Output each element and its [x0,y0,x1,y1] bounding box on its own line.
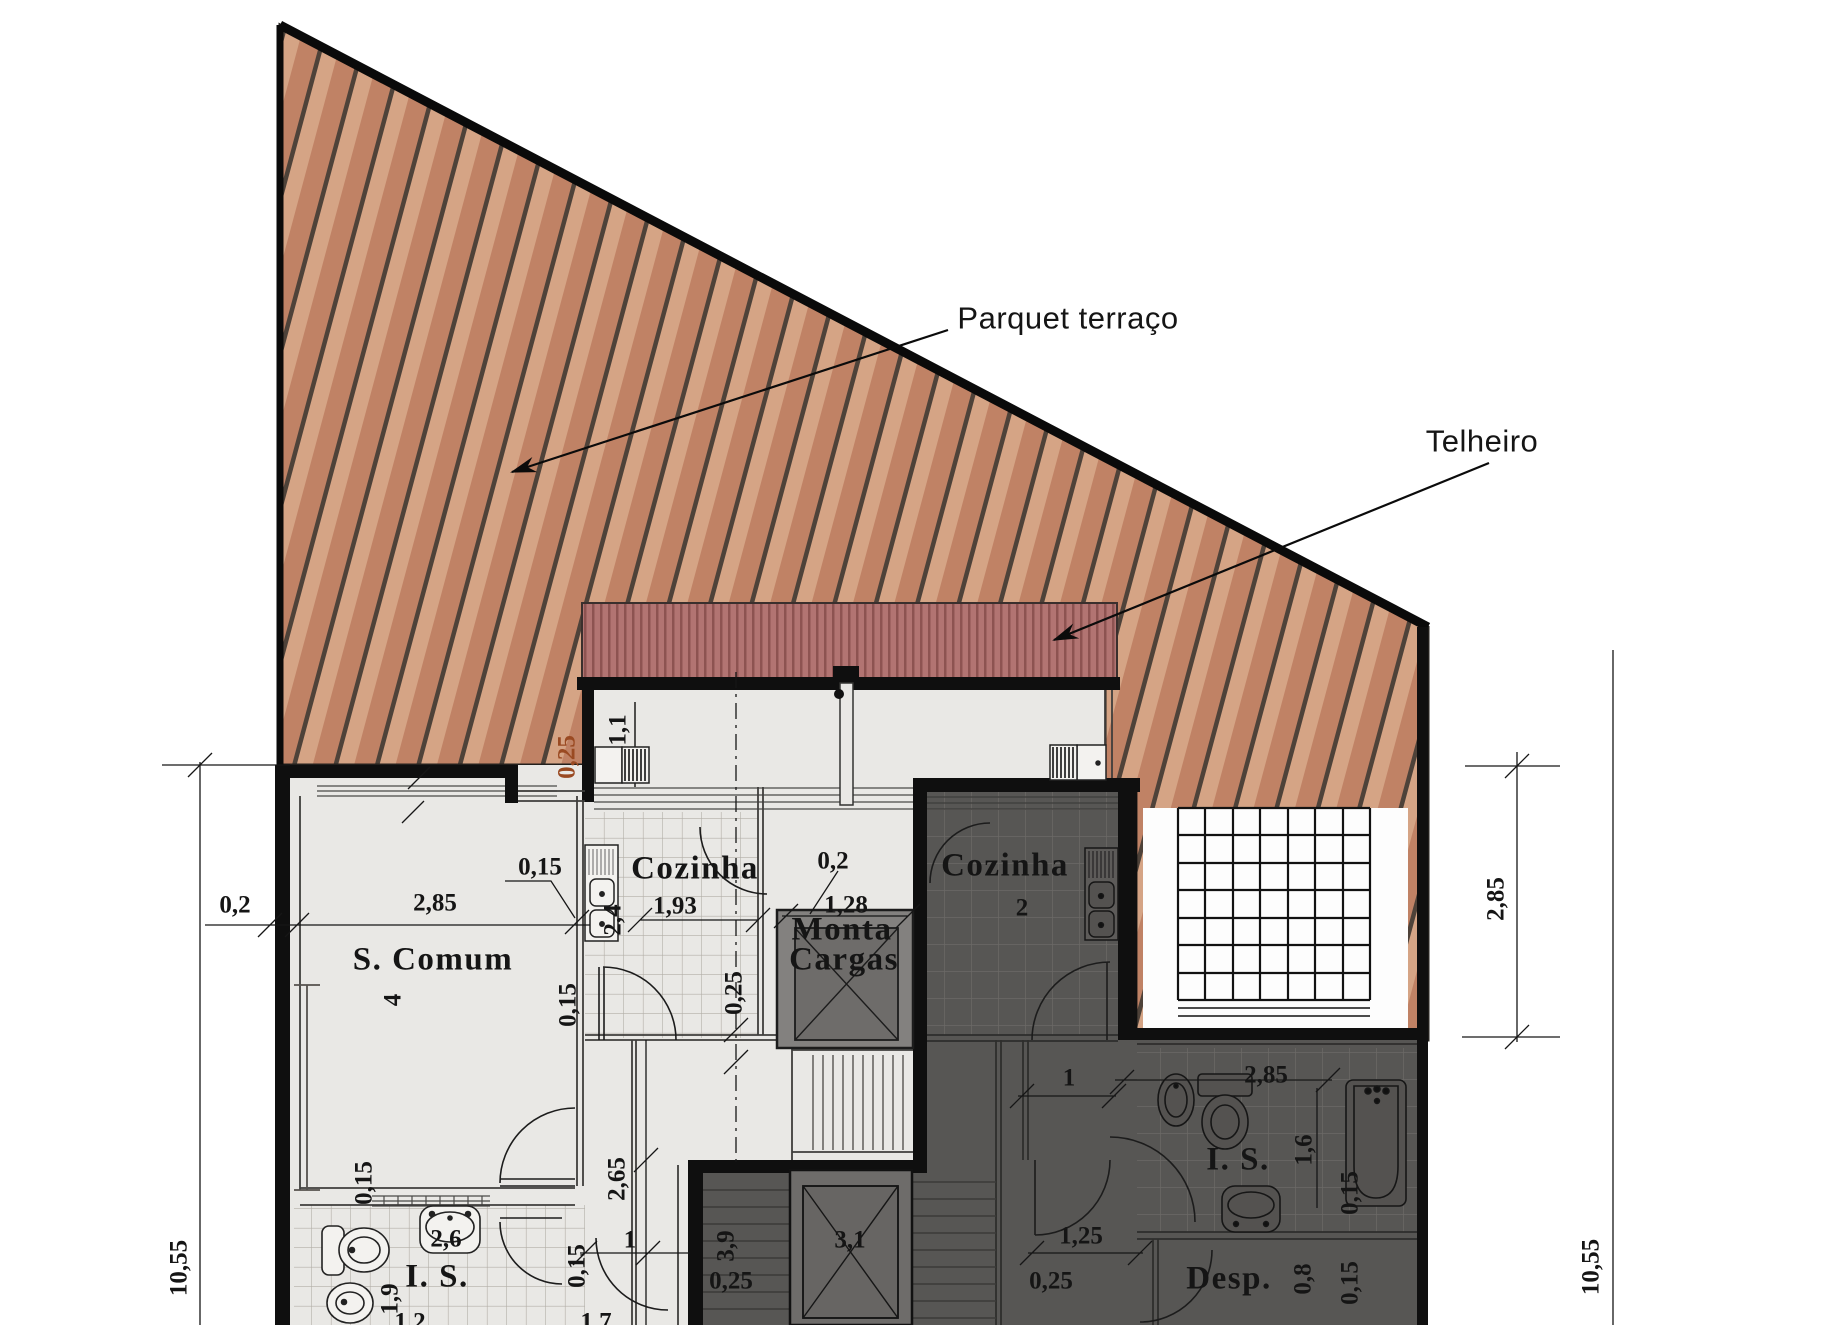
dim-0-25-right: 0,25 [1029,1269,1073,1294]
dim-0-8-desp: 0,8 [1291,1263,1316,1294]
dim-2-65-hall: 2,65 [605,1157,630,1201]
dim-2-6-sink: 2,6 [430,1227,461,1252]
room-label-cozinha-right: Cozinha [941,850,1069,883]
dim-0-2-left: 0,2 [219,893,250,918]
dim-1-2-bottom: 1,2 [394,1310,425,1325]
dim-0-15-sink: 0,15 [518,855,562,880]
dim-2-85-scomum: 2,85 [413,891,457,916]
floor-plan-drawing [0,0,1842,1325]
dim-0-15-isleft: 0,15 [352,1161,377,1205]
room-label-cozinha-left: Cozinha [631,853,759,886]
floor-plan-canvas: Parquet terraçoTelheiroS. ComumCozinhaMo… [0,0,1842,1325]
dim-0-25-mid: 0,25 [722,971,747,1015]
dim-1-25-right: 1,25 [1059,1224,1103,1249]
dim-10-55-left: 10,55 [167,1240,192,1296]
dim-3-9-stair: 3,9 [714,1230,739,1261]
dim-1-93-kitchen: 1,93 [653,894,697,919]
courtyard [1143,808,1408,1030]
dim-1-door-right: 1 [1063,1066,1076,1091]
dim-2-4-kitchen: 2,4 [601,904,626,935]
dim-0-15-door: 0,15 [565,1244,590,1288]
dim-0-25-stair: 0,25 [709,1269,753,1294]
dim-3-1-lift: 3,1 [834,1228,865,1253]
dim-1-1-terrace: 1,1 [606,714,631,745]
dim-0-15-desp: 0,15 [1338,1261,1363,1305]
room-label-is-left: I. S. [405,1261,468,1294]
room-label-desp: Desp. [1186,1263,1271,1296]
dim-1-door-left: 1 [624,1228,637,1253]
dim-0-15-mid: 0,15 [556,983,581,1027]
dim-1-28-shaft: 1,28 [824,893,868,918]
dim-1-6-isright: 1,6 [1292,1134,1317,1165]
dim-2-85-isright: 2,85 [1244,1063,1288,1088]
dim-1-7-bottom: 1,7 [580,1310,611,1325]
room-label-is-right: I. S. [1206,1144,1269,1177]
dim-10-55-right: 10,55 [1579,1239,1604,1295]
fixtures-dark-kitchen [1085,848,1118,940]
dim-0-2-shaft: 0,2 [817,849,848,874]
dim-0-15-isright: 0,15 [1338,1171,1363,1215]
dim-2-85-outer-right: 2,85 [1484,877,1509,921]
room-label-cargas: Cargas [789,944,899,977]
dim-0-25-red: 0,25 [555,735,580,779]
dim-4-scomum: 4 [381,994,406,1007]
room-label-s-comum: S. Comum [353,944,514,977]
dim-2-cozinha-right: 2 [1016,896,1029,921]
annotation-telheiro: Telheiro [1426,426,1539,457]
annotation-parquet-terraco: Parquet terraço [957,303,1178,334]
